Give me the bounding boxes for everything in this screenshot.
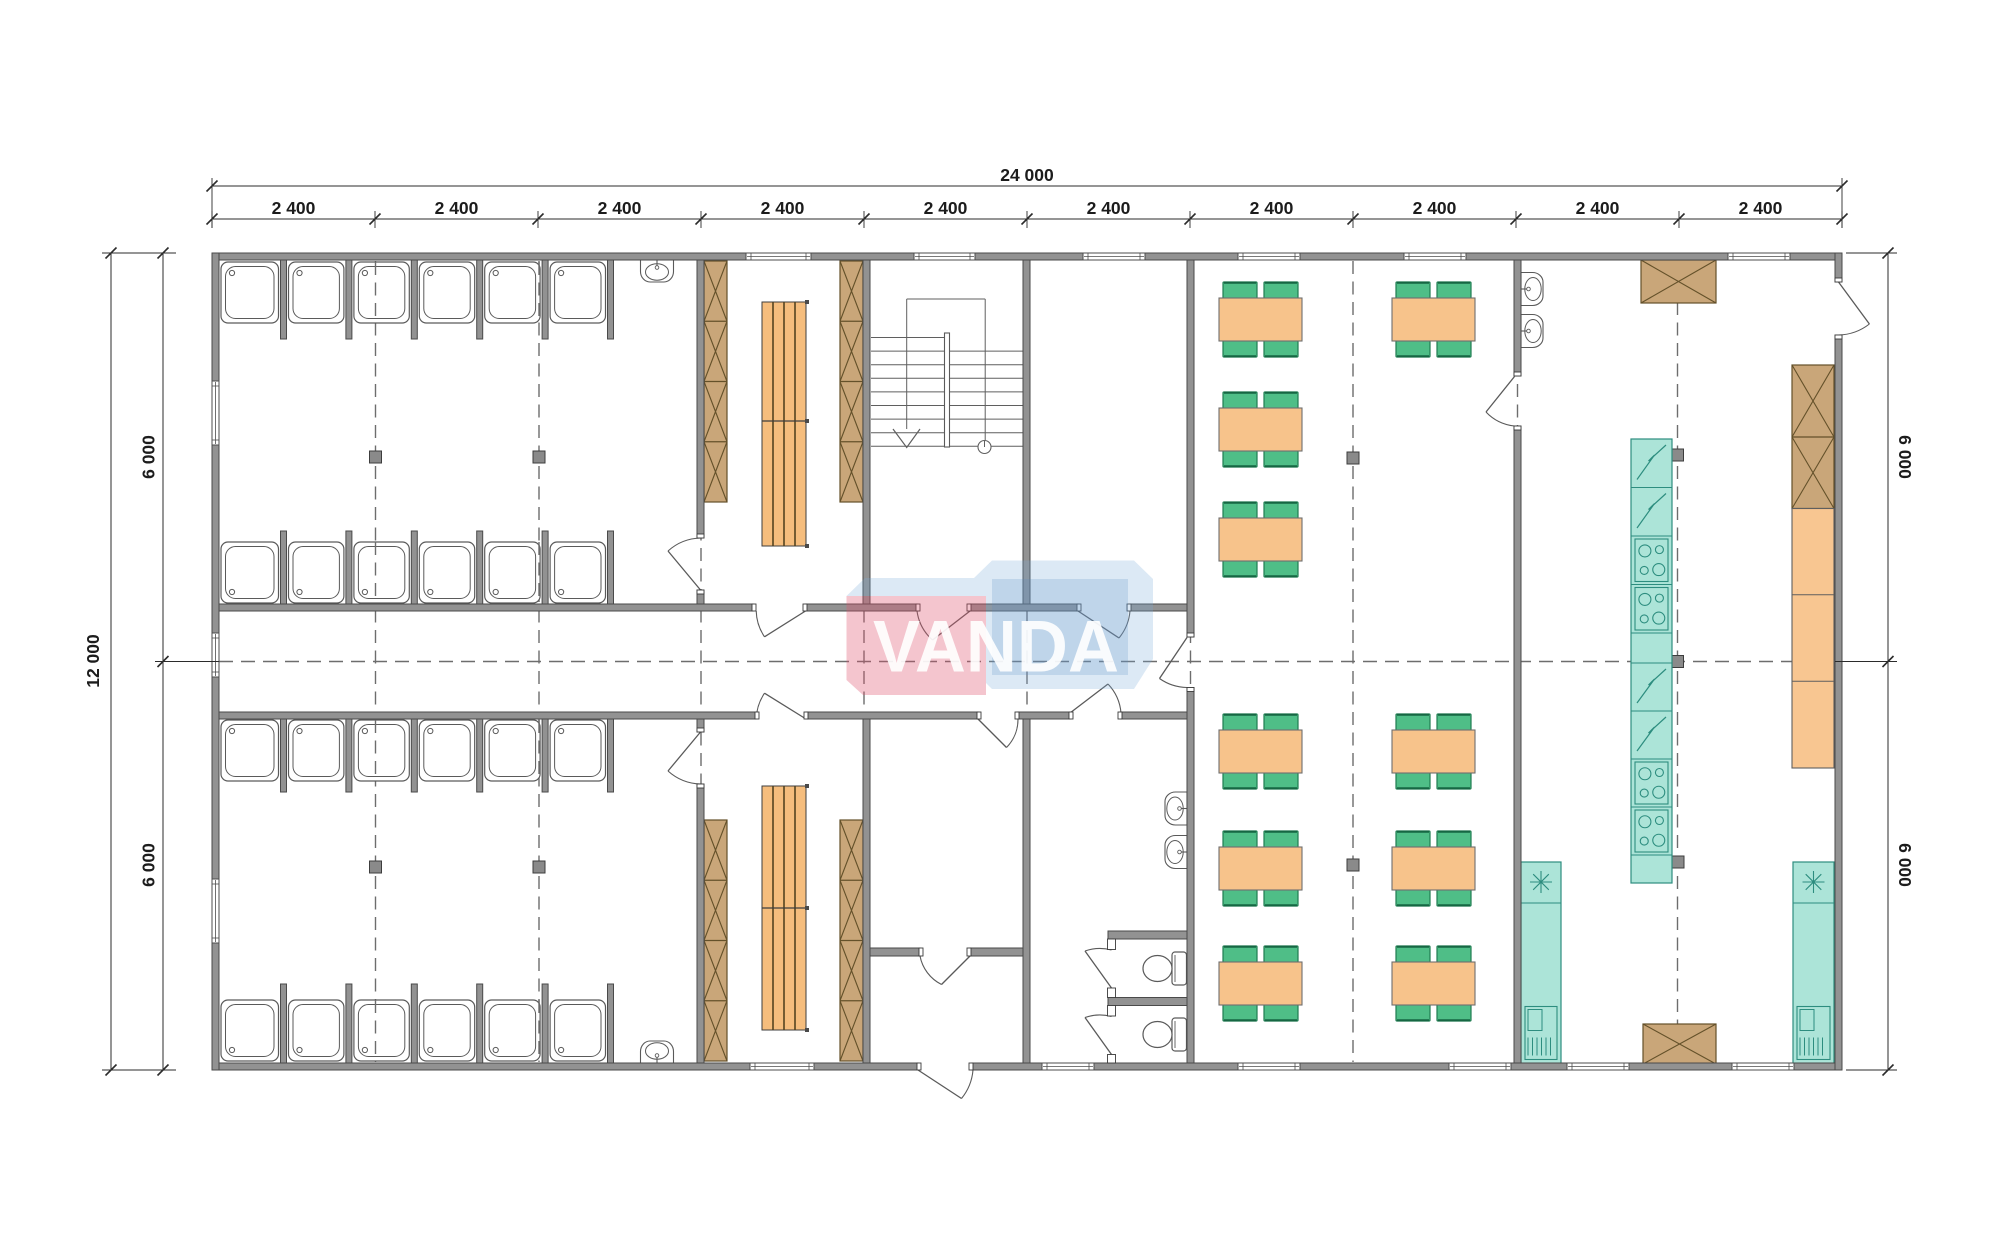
svg-text:2 400: 2 400 [598, 198, 642, 218]
svg-text:VANDA: VANDA [873, 607, 1119, 688]
svg-text:24 000: 24 000 [1000, 165, 1054, 185]
svg-text:2 400: 2 400 [761, 198, 805, 218]
svg-text:2 400: 2 400 [1576, 198, 1620, 218]
svg-text:2 400: 2 400 [1250, 198, 1294, 218]
svg-text:2 400: 2 400 [924, 198, 968, 218]
svg-text:2 400: 2 400 [1739, 198, 1783, 218]
svg-text:2 400: 2 400 [435, 198, 479, 218]
svg-text:6 000: 6 000 [139, 843, 159, 887]
svg-text:6 000: 6 000 [1895, 435, 1915, 479]
svg-text:12 000: 12 000 [83, 634, 103, 688]
svg-text:2 400: 2 400 [1087, 198, 1131, 218]
svg-text:6 000: 6 000 [139, 435, 159, 479]
svg-text:2 400: 2 400 [272, 198, 316, 218]
svg-text:6 000: 6 000 [1895, 843, 1915, 887]
svg-text:2 400: 2 400 [1413, 198, 1457, 218]
